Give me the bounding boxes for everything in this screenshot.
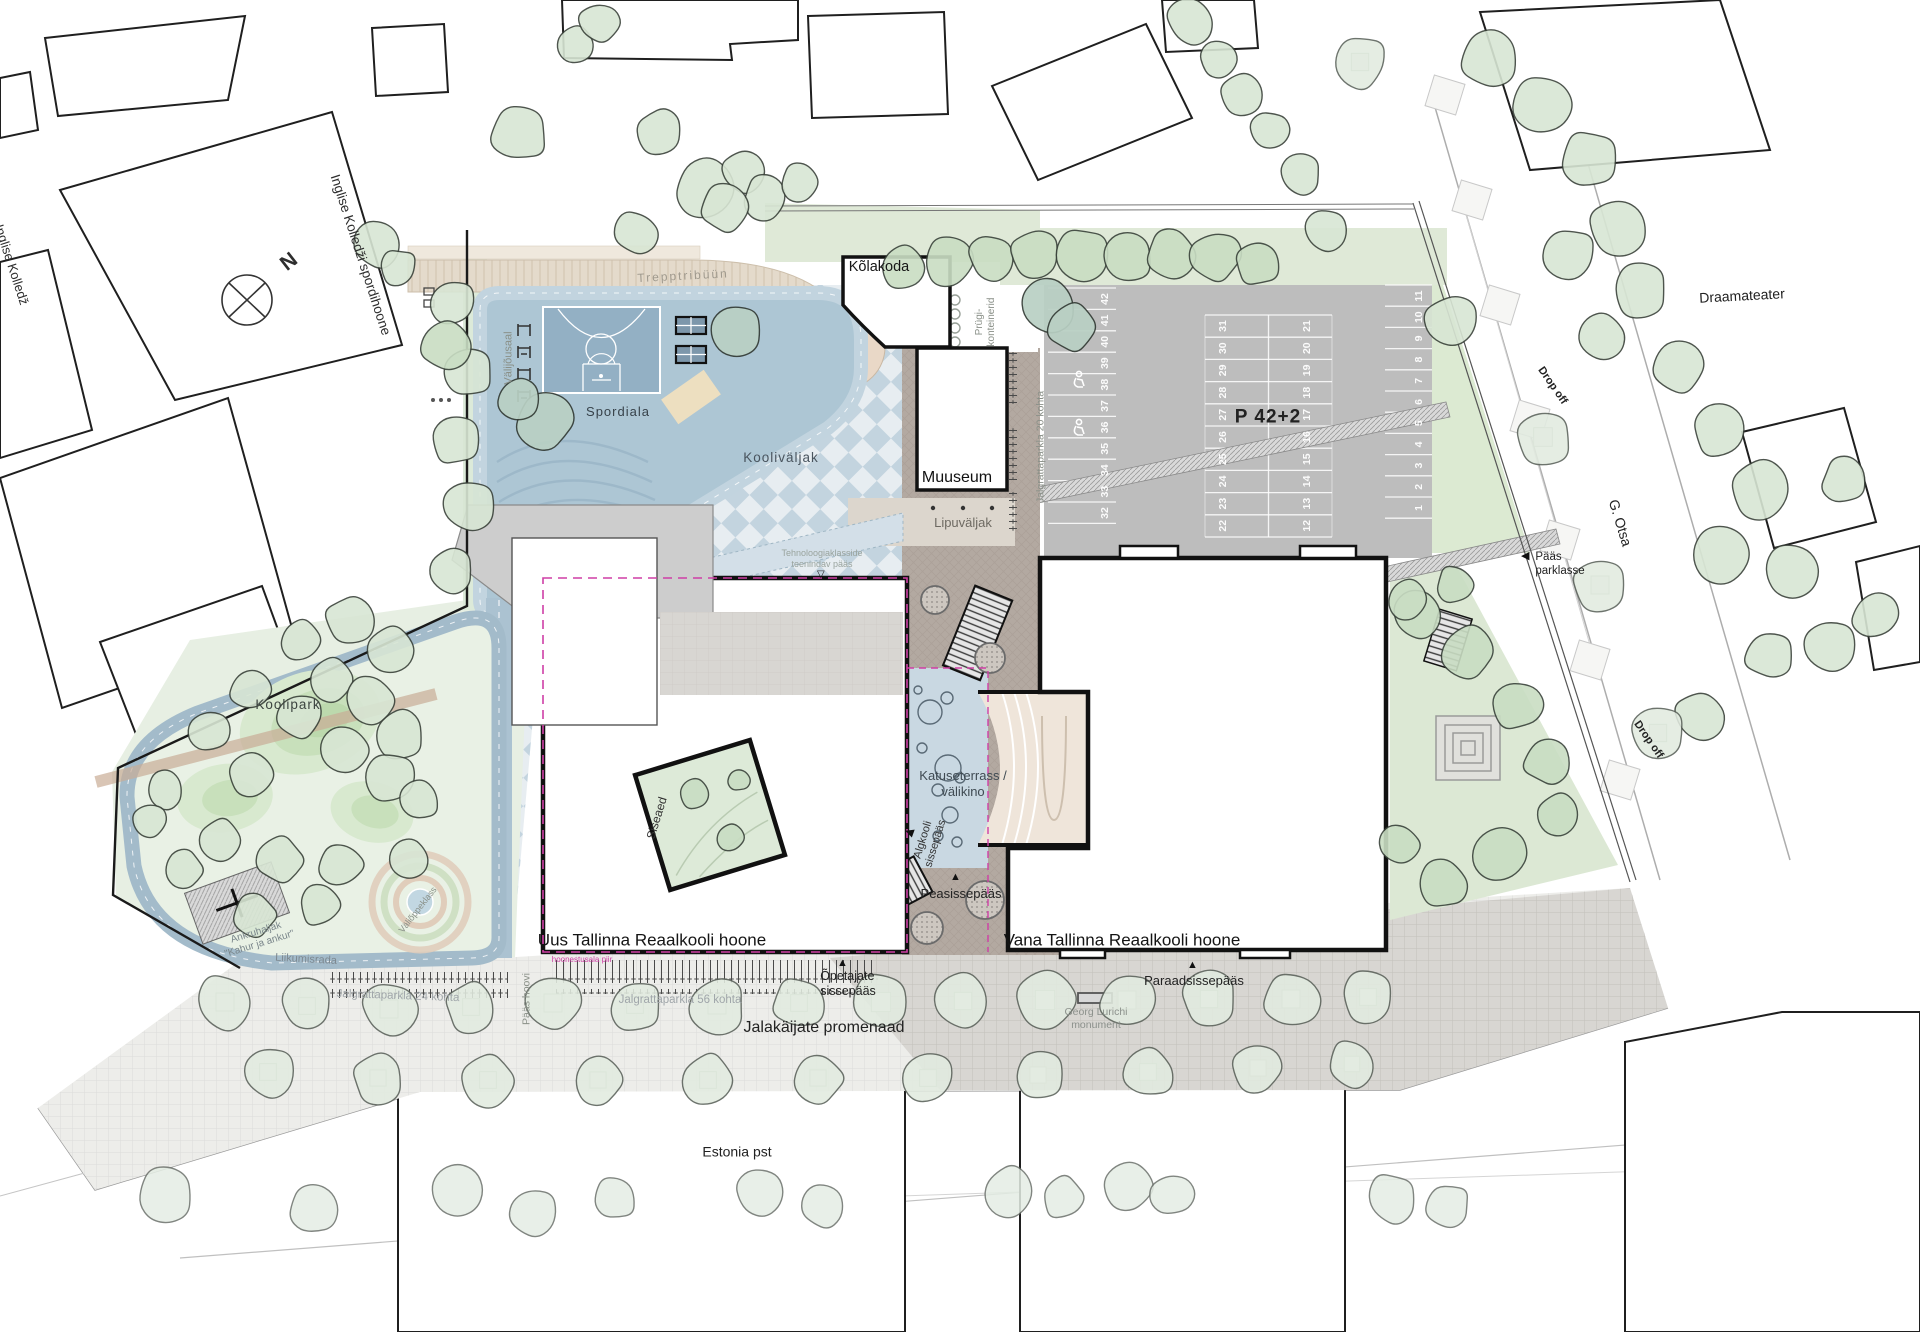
tehnoloogia-entrance-icon: ▽ (817, 570, 825, 580)
label-siseaed: Siseaed (644, 795, 671, 841)
label-paas-hoovi: Pääs hoovi (521, 973, 534, 1025)
label-tallinna-inglise: Tallinna Inglise Kolledž (0, 177, 32, 307)
label-koolipark: Koolipark (255, 697, 320, 713)
label-jalgrattaparkla-20: Jalgrattaparkla 20 kohta (1035, 391, 1048, 503)
label-liikumisrada: Liikumisrada (275, 952, 337, 969)
plan-labels: N Inglise Kolledži spordihoone Tallinna … (0, 0, 1920, 1332)
paraad-entrance-icon: ▲ (1187, 960, 1198, 971)
site-plan-canvas: 4241403938373635343332313029282726252423… (0, 0, 1920, 1332)
label-tehnoloogia-paas: Tehnoloogiaklasside teenindav pääs (781, 548, 862, 570)
label-inglise-kolledzi-spordihoone: Inglise Kolledži spordihoone (326, 173, 394, 338)
label-kolakoda: Kõlakoda (849, 259, 909, 277)
label-lipuvaljak: Lipuväljak (934, 515, 992, 531)
label-algkooli-sissepaas: Algkooli sissepääs (910, 815, 950, 870)
label-prugikonteinerid: Prügi- konteinerid (974, 298, 998, 347)
north-label: N (275, 247, 303, 277)
label-paraadsissepaas: Paraadsissepääs (1144, 973, 1244, 989)
label-drop-off-south: Drop off (1630, 719, 1666, 762)
label-parking-total: P 42+2 (1235, 405, 1301, 428)
label-ankruhaljak: Ankruhaljak "Kahur ja ankur" (220, 917, 296, 961)
opetajate-entrance-icon: ▲ (837, 958, 848, 969)
label-vana-hoone: Vana Tallinna Reaalkooli hoone (1004, 931, 1241, 952)
label-jalgrattaparkla-56: Jalgrattaparkla 56 kohta (619, 993, 742, 1007)
label-hoonestusala-piir: hoonestusala piir (552, 955, 612, 965)
label-georg-lurich: Georg Lurichi monument (1064, 1006, 1127, 1032)
label-g-otsa: G. Otsa (1605, 497, 1635, 548)
label-paas-parklasse: Pääs parklasse (1535, 550, 1584, 578)
label-jalakaijate-promenaad: Jalakäijate promenaad (744, 1018, 905, 1038)
paas-parklasse-icon: ◀ (1521, 551, 1529, 562)
label-estonia-pst: Estonia pst (702, 1143, 771, 1160)
label-valioppeklass: Väliõppeklass (397, 885, 440, 936)
label-uus-hoone: Uus Tallinna Reaalkooli hoone (538, 931, 766, 952)
label-opetajate-sissepaas: Õpetajate sissepääs (820, 969, 876, 1000)
label-muuseum: Muuseum (922, 468, 992, 488)
label-drop-off-north: Drop off (1534, 365, 1570, 408)
label-spordiala: Spordiala (586, 404, 650, 420)
label-katuseterrass: Katuseterrass / välikino (919, 768, 1006, 800)
label-valijousaal: Välijõusaal (502, 331, 515, 384)
label-jalgrattaparkla-24: Jalgrattaparkla 24 kohta (336, 987, 459, 1005)
peasissepaas-entrance-icon: ▲ (950, 872, 961, 883)
label-koolivaljak: Kooliväljak (743, 450, 819, 466)
label-draamateater: Draamateater (1699, 285, 1785, 307)
label-peasissepaas: Peasissepääs (921, 886, 1002, 902)
algkooli-entrance-icon: ◀ (903, 826, 915, 839)
label-trepptribuun: Trepptribüün (637, 266, 729, 285)
